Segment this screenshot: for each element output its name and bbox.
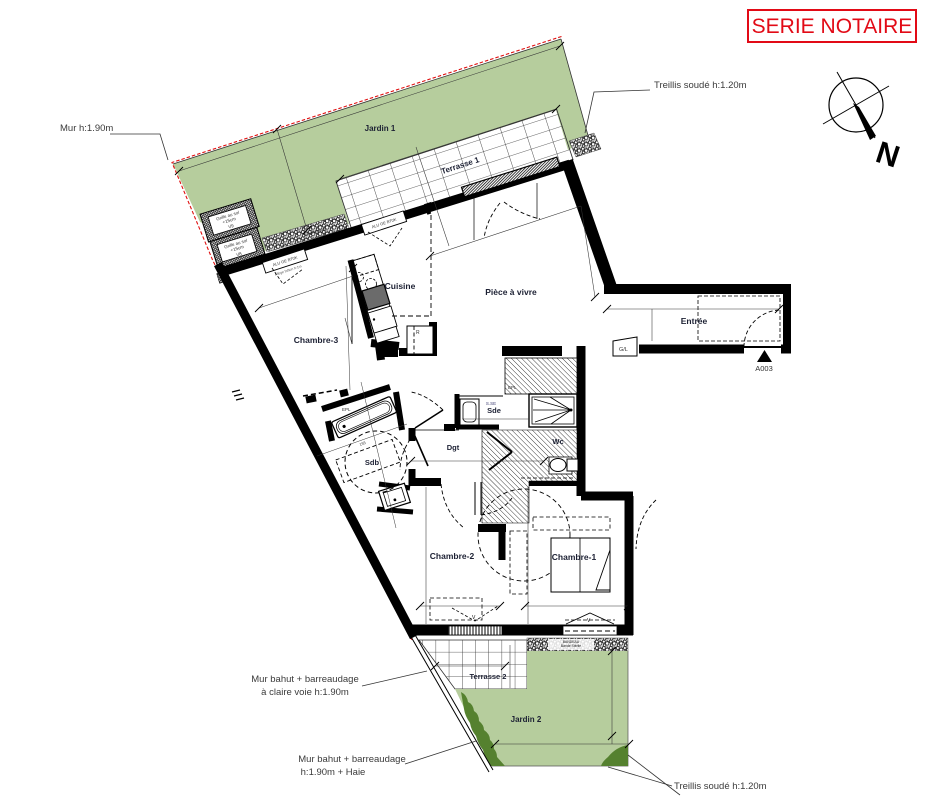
svg-text:EPL: EPL bbox=[342, 407, 351, 412]
svg-text:Sde: Sde bbox=[487, 406, 501, 415]
svg-text:Mur h:1.90m: Mur h:1.90m bbox=[60, 123, 113, 134]
svg-text:S.SE: S.SE bbox=[486, 401, 496, 406]
svg-text:Treillis soudé h:1.20m: Treillis soudé h:1.20m bbox=[654, 80, 747, 91]
svg-text:Jardin 1: Jardin 1 bbox=[365, 124, 396, 133]
svg-text:Mur bahut + barreaudage: Mur bahut + barreaudage bbox=[298, 754, 405, 765]
svg-text:Treillis soudé h:1.20m: Treillis soudé h:1.20m bbox=[674, 781, 767, 792]
svg-text:Dgt: Dgt bbox=[447, 443, 460, 452]
svg-text:Sdb: Sdb bbox=[365, 458, 380, 467]
svg-text:G/L: G/L bbox=[619, 347, 628, 353]
svg-text:Entrée: Entrée bbox=[681, 316, 708, 326]
svg-text:h:1.90m + Haie: h:1.90m + Haie bbox=[301, 767, 366, 778]
svg-text:Chambre-3: Chambre-3 bbox=[294, 335, 339, 345]
svg-text:Chambre-2: Chambre-2 bbox=[430, 551, 475, 561]
svg-text:R: R bbox=[416, 330, 420, 336]
svg-text:EPL: EPL bbox=[508, 385, 517, 390]
svg-text:Bande Stérile: Bande Stérile bbox=[561, 644, 581, 648]
svg-text:A003: A003 bbox=[755, 364, 773, 373]
svg-text:Terrasse 2: Terrasse 2 bbox=[470, 672, 507, 681]
svg-text:Pièce à vivre: Pièce à vivre bbox=[485, 287, 537, 297]
svg-text:Chambre-1: Chambre-1 bbox=[552, 552, 597, 562]
svg-text:Jardin 2: Jardin 2 bbox=[511, 715, 542, 724]
svg-text:SERIE NOTAIRE: SERIE NOTAIRE bbox=[752, 15, 913, 38]
svg-text:à claire voie h:1.90m: à claire voie h:1.90m bbox=[261, 687, 349, 698]
svg-text:Cuisine: Cuisine bbox=[385, 281, 416, 291]
svg-text:Wc: Wc bbox=[552, 437, 563, 446]
svg-text:Mur bahut + barreaudage: Mur bahut + barreaudage bbox=[251, 674, 358, 685]
